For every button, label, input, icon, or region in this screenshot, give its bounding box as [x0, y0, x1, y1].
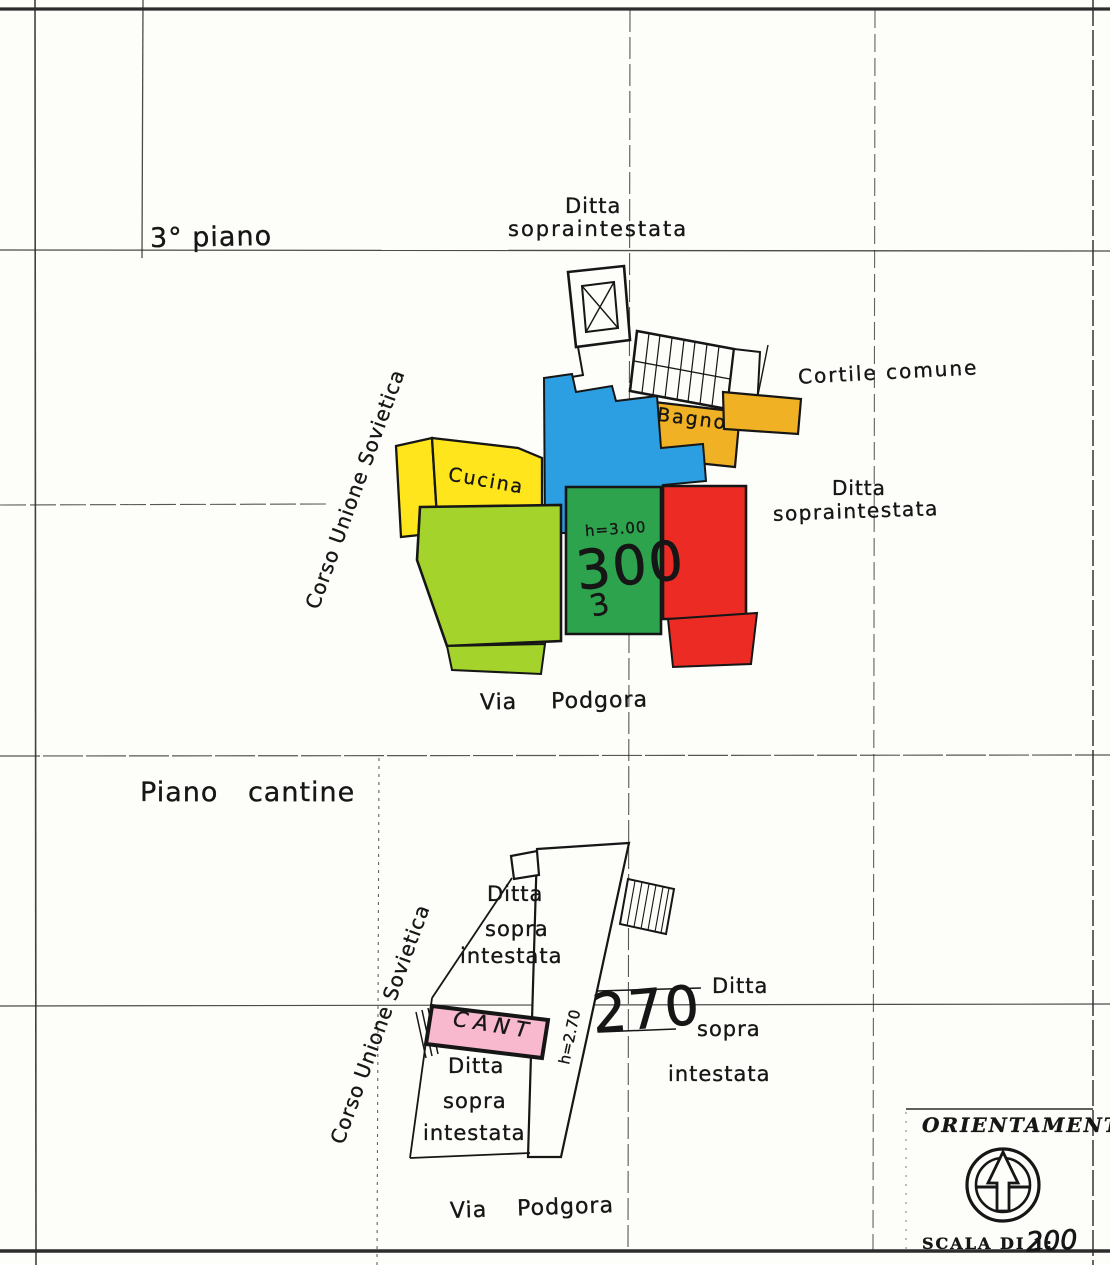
- street-boundary-bottom: [410, 1153, 530, 1158]
- lower-ditta-lower-line3: intestata: [423, 1121, 525, 1145]
- lower-unit-number: 270: [589, 973, 703, 1045]
- balcony-red: [668, 613, 757, 667]
- lower-ditta-upper-line3: intestata: [460, 944, 562, 968]
- upper-ditta-top-line1: Ditta: [565, 194, 621, 218]
- floor-plan-drawing: [0, 0, 1110, 1265]
- scanned-floor-plan-page: 3° piano Ditta sopraintestata Cortile co…: [0, 0, 1110, 1265]
- fold-line-h-505: [0, 504, 330, 505]
- upper-ditta-top-line2: sopraintestata: [508, 217, 688, 241]
- cellar-corridor-notch: [511, 851, 539, 879]
- fold-line-h-755: [0, 755, 1110, 756]
- upper-floor-title: 3° piano: [150, 221, 273, 254]
- fold-line-v-143: [142, 0, 143, 258]
- north-arrow-compass-icon: [967, 1149, 1039, 1221]
- lower-ditta-lower-line1: Ditta: [448, 1054, 504, 1078]
- room-living-lightgreen: [417, 505, 561, 646]
- lower-ditta-lower-line2: sopra: [443, 1089, 507, 1113]
- upper-street-bottom-label: Via Podgora: [480, 688, 648, 716]
- courtyard-strip: [723, 392, 801, 434]
- lower-ditta-right-line2: sopra: [697, 1017, 761, 1041]
- upper-ditta-right-line1: Ditta: [832, 476, 886, 500]
- fold-line-v-35: [35, 0, 36, 1265]
- orientation-title: ORIENTAMENTO: [922, 1113, 1110, 1137]
- lower-ditta-right-line1: Ditta: [712, 974, 768, 998]
- balcony-lightgreen: [447, 644, 545, 674]
- scale-value: 200: [1025, 1225, 1078, 1259]
- lower-ditta-right-line3: intestata: [668, 1062, 770, 1086]
- lower-floor-title: Piano cantine: [140, 777, 355, 808]
- fold-line-v-875: [873, 10, 875, 1250]
- lower-ditta-upper-line1: Ditta: [487, 882, 543, 906]
- lower-ditta-upper-line2: sopra: [485, 917, 549, 941]
